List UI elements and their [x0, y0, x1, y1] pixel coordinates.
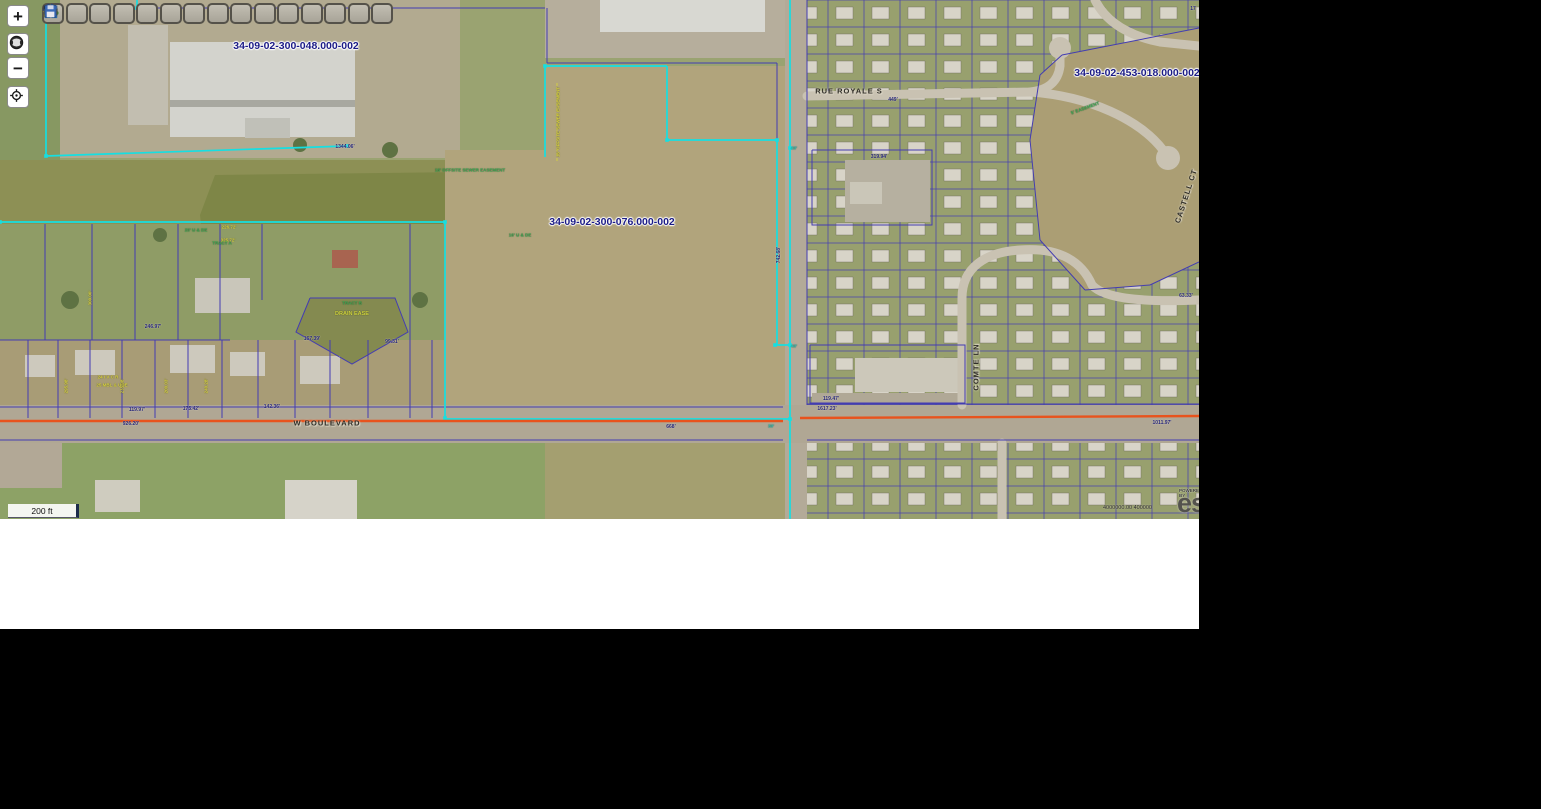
toolbar: iH-?-H: [42, 3, 393, 24]
camera-button[interactable]: [207, 3, 229, 24]
full-extent-globe-button[interactable]: [7, 33, 29, 55]
print-button[interactable]: [348, 3, 370, 24]
save-icon: [42, 3, 59, 19]
empty-page-area: [0, 519, 1199, 629]
select-features-button[interactable]: [301, 3, 323, 24]
measure-button[interactable]: H-?-H: [230, 3, 252, 24]
zoom-in-button[interactable]: +: [7, 5, 29, 27]
identify-flash-button[interactable]: [66, 3, 88, 24]
pushpin-button[interactable]: [183, 3, 205, 24]
app-window: 34-09-02-300-048.000-00234-09-02-300-076…: [0, 0, 1541, 809]
map-canvas[interactable]: 34-09-02-300-048.000-00234-09-02-300-076…: [0, 0, 1199, 519]
buffer-button[interactable]: [324, 3, 346, 24]
draw-pencil-button[interactable]: [277, 3, 299, 24]
full-extent-globe-icon: [8, 34, 25, 51]
scale-bar-label: 200 ft: [31, 506, 52, 516]
search-button[interactable]: [254, 3, 276, 24]
pan-hand-button[interactable]: [113, 3, 135, 24]
locate-crosshair-button[interactable]: [7, 86, 29, 108]
aerial-parcel-layer: [0, 0, 1199, 519]
eraser-button[interactable]: [136, 3, 158, 24]
zoom-select-button[interactable]: [89, 3, 111, 24]
add-data-button[interactable]: [160, 3, 182, 24]
zoom-out-button[interactable]: −: [7, 57, 29, 79]
scale-bar: 200 ft: [8, 504, 79, 518]
powered-by-label: POWERED BY: [1179, 488, 1199, 498]
locate-crosshair-icon: [8, 87, 25, 104]
coordinate-readout: 4000000.00 400000: [1103, 505, 1152, 511]
save-button[interactable]: [371, 3, 393, 24]
